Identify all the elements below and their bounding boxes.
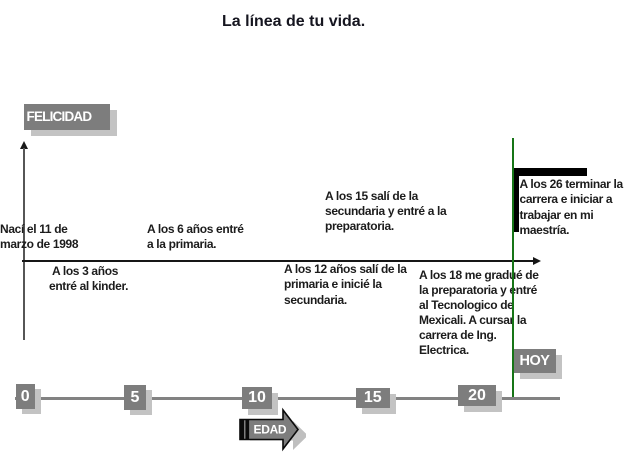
svg-text:EDAD: EDAD	[254, 423, 287, 437]
